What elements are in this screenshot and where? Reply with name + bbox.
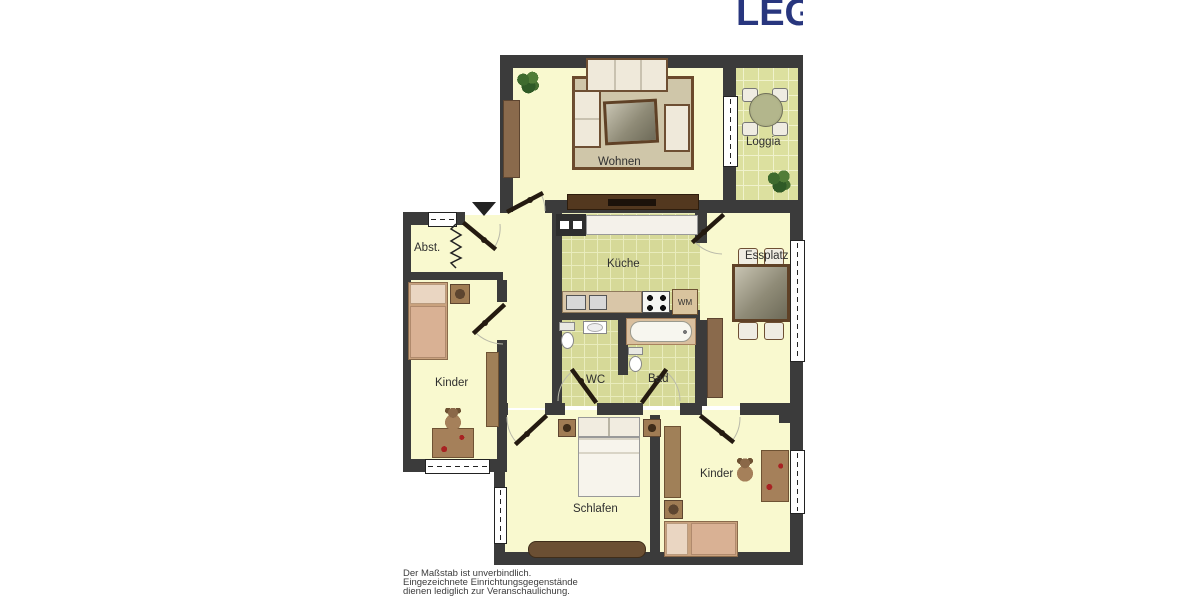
wall-segment — [500, 199, 508, 213]
room-label-bad: Bad — [648, 373, 668, 385]
room-label-kinder-links: Kinder — [435, 377, 468, 389]
tv-board-detail — [608, 199, 656, 206]
washing-machine-label: WM — [678, 298, 692, 307]
pillow — [666, 523, 688, 555]
sink-basin — [566, 295, 586, 310]
bathtub — [630, 321, 692, 342]
window-wohnen-loggia — [723, 96, 738, 167]
wall-segment — [497, 280, 507, 302]
pillow — [410, 284, 446, 304]
wardrobe — [528, 541, 646, 558]
hall-cabinet — [707, 318, 723, 398]
blanket — [691, 523, 736, 555]
toilet — [629, 356, 642, 372]
plant-icon — [516, 70, 540, 94]
wall-segment — [545, 403, 565, 415]
wall-segment — [723, 68, 736, 96]
window-kinder-links — [425, 459, 490, 474]
wall-segment — [403, 272, 503, 280]
leg-logo: LEG — [736, 0, 803, 32]
teddy-bear-icon — [736, 458, 754, 482]
wall-segment — [494, 459, 505, 487]
double-bed — [578, 437, 640, 497]
wall-segment — [680, 403, 702, 415]
room-label-wohnen: Wohnen — [598, 156, 641, 168]
desk — [432, 428, 474, 458]
window-abst — [428, 212, 457, 227]
toilet-tank — [559, 322, 575, 331]
sink-basin — [589, 295, 607, 310]
side-table — [450, 284, 470, 304]
blanket — [410, 306, 446, 358]
room-label-abst: Abst. — [414, 242, 440, 254]
balcony-table — [749, 93, 783, 127]
wall-segment — [790, 213, 803, 240]
desk — [761, 450, 789, 502]
sideboard — [503, 100, 520, 178]
dining-table — [732, 264, 790, 322]
room-label-essplatz: Essplatz — [745, 250, 788, 262]
wall-segment — [723, 165, 736, 200]
nightstand — [558, 419, 576, 437]
disclaimer-line: dienen lediglich zur Veranschaulichung. — [403, 588, 578, 597]
double-bed-pillows — [578, 417, 640, 437]
toilet-tank — [628, 347, 643, 355]
disclaimer-text: Der Maßstab ist unverbindlich. Eingezeic… — [403, 570, 578, 597]
sofa — [586, 58, 668, 92]
toilet — [561, 332, 574, 349]
room-label-kinder-rechts: Kinder — [700, 468, 733, 480]
washbasin-bowl — [587, 323, 603, 332]
armchair — [664, 104, 690, 152]
room-label-kueche: Küche — [607, 258, 640, 270]
nightstand — [643, 419, 661, 437]
window-essplatz — [790, 240, 805, 362]
coffee-table — [603, 99, 659, 146]
wall-segment — [597, 403, 643, 415]
dining-chair — [738, 322, 758, 340]
room-floor-corridor — [500, 208, 555, 408]
wall-segment — [798, 68, 803, 200]
room-label-loggia: Loggia — [746, 136, 781, 148]
wall-segment — [552, 318, 562, 406]
wall-segment — [790, 360, 803, 450]
plant-icon — [766, 168, 792, 194]
room-label-wc: WC — [586, 374, 605, 386]
armchair — [573, 90, 601, 148]
kitchen-counter — [586, 215, 698, 235]
wall-segment — [695, 320, 707, 406]
window-kinder-rechts — [790, 450, 805, 514]
wall-segment — [723, 200, 803, 213]
window-schlafen — [494, 487, 507, 544]
side-table — [664, 500, 683, 519]
floor-plan-canvas: LEG — [0, 0, 1200, 600]
stove — [642, 291, 670, 313]
kitchen-cupboard — [556, 214, 586, 236]
wardrobe — [664, 426, 681, 498]
teddy-bear-icon — [444, 408, 462, 430]
entrance-arrow-icon — [472, 202, 496, 216]
wall-segment — [790, 512, 803, 565]
wall-segment — [403, 459, 425, 472]
room-label-schlafen: Schlafen — [573, 503, 618, 515]
wardrobe — [486, 352, 499, 427]
washing-machine: WM — [672, 289, 698, 315]
dining-chair — [764, 322, 784, 340]
